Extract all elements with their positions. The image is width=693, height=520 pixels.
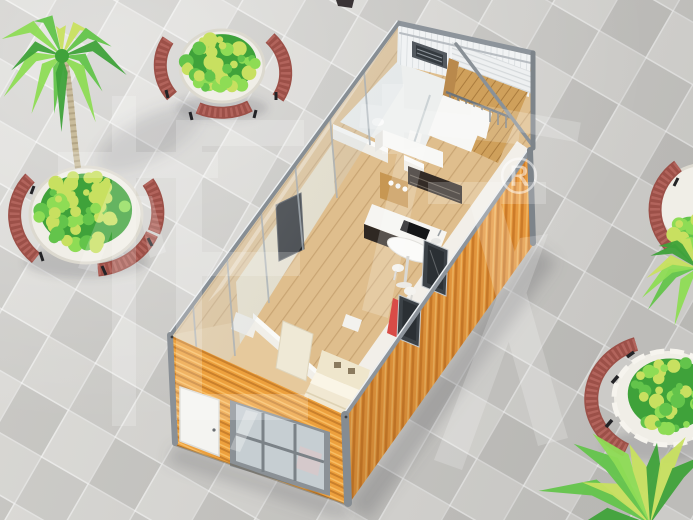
corner-bolt — [345, 416, 348, 419]
headboard-niche — [348, 368, 355, 374]
scene-3d-render: ® — [0, 0, 693, 520]
render-canvas: ® — [0, 0, 693, 520]
palm-fronds — [642, 238, 693, 325]
headboard-niche — [334, 362, 341, 368]
palm-canopy — [2, 15, 127, 132]
registered-trademark-symbol: ® — [494, 148, 544, 206]
bar-stool — [404, 287, 416, 296]
south-corner-post — [345, 415, 348, 503]
door-handle — [212, 428, 215, 431]
corner-bolt — [171, 336, 174, 339]
palm-tree-large — [2, 15, 127, 132]
planter-right-edge — [642, 164, 693, 326]
bench-back-top-edge — [336, 0, 354, 8]
